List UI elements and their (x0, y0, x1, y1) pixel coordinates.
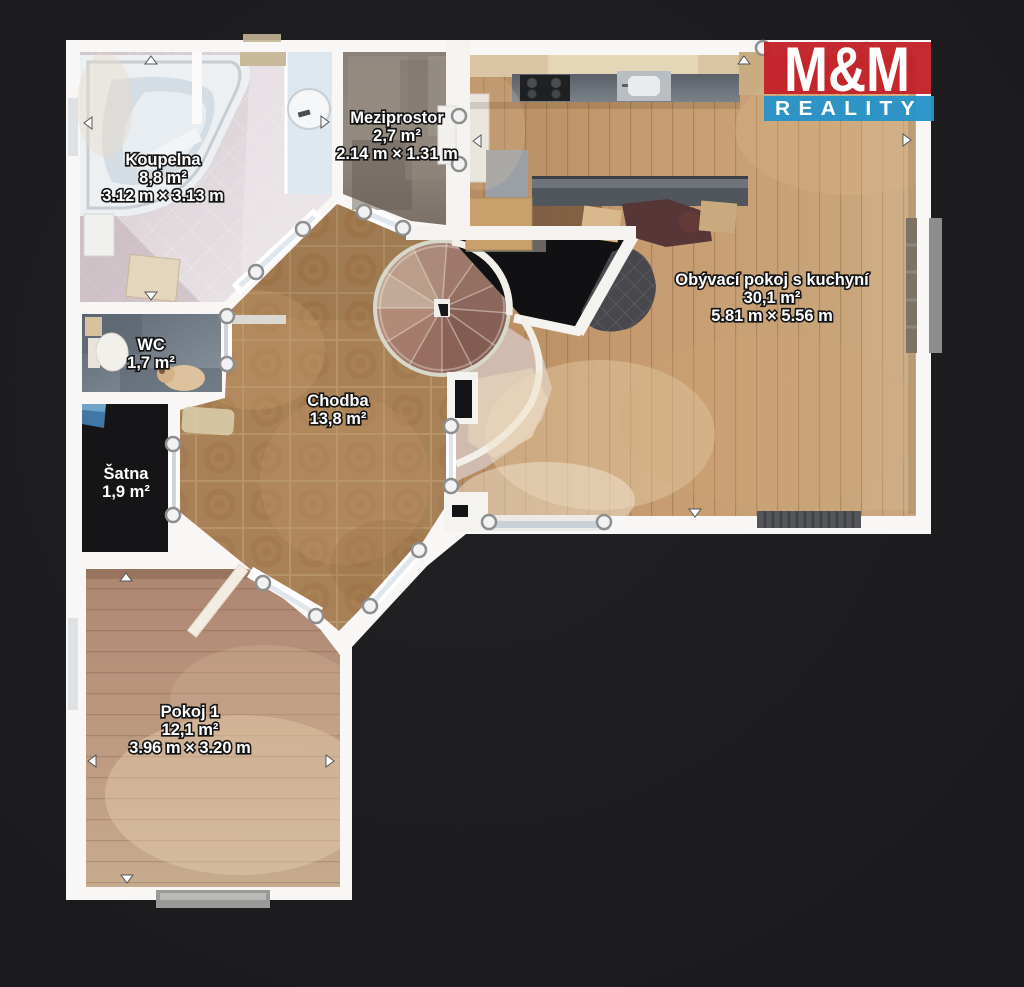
svg-text:Meziprostor: Meziprostor (350, 109, 444, 127)
svg-text:1,9 m²: 1,9 m² (102, 483, 150, 501)
svg-text:3.96 m × 3.20 m: 3.96 m × 3.20 m (129, 739, 251, 757)
svg-text:WC: WC (137, 336, 165, 354)
svg-text:12,1 m²: 12,1 m² (162, 721, 219, 739)
svg-text:REALITY: REALITY (775, 98, 923, 120)
svg-text:M&M: M&M (784, 35, 910, 105)
svg-text:Koupelna: Koupelna (125, 151, 201, 169)
svg-text:2,7 m²: 2,7 m² (373, 127, 421, 145)
svg-text:Šatna: Šatna (104, 464, 150, 483)
svg-text:Pokoj 1: Pokoj 1 (161, 703, 220, 721)
svg-text:8,8 m²: 8,8 m² (139, 169, 187, 187)
svg-text:3.12 m × 3.13 m: 3.12 m × 3.13 m (102, 187, 224, 205)
svg-text:30,1 m²: 30,1 m² (744, 289, 801, 307)
svg-text:5.81 m × 5.56 m: 5.81 m × 5.56 m (711, 307, 833, 325)
svg-text:2.14 m × 1.31 m: 2.14 m × 1.31 m (336, 145, 458, 163)
svg-text:1,7 m²: 1,7 m² (127, 354, 175, 372)
svg-text:13,8 m²: 13,8 m² (310, 410, 367, 428)
svg-text:Obývací pokoj s kuchyní: Obývací pokoj s kuchyní (675, 271, 870, 289)
svg-text:Chodba: Chodba (307, 392, 369, 410)
